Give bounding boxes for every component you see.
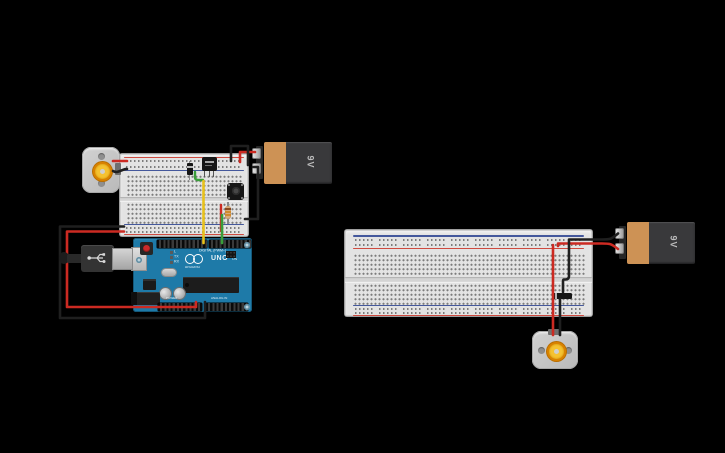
motor-terminals[interactable] — [115, 163, 121, 175]
battery-voltage-label: 9V — [306, 155, 316, 168]
positive-rail-line — [124, 234, 244, 236]
pushbutton-leg — [228, 184, 230, 186]
battery-9v-left[interactable]: 9V — [252, 142, 332, 184]
led-rx — [170, 261, 173, 264]
motor-terminals[interactable] — [548, 329, 560, 335]
chip-notch — [185, 283, 189, 287]
battery-negative-terminal[interactable] — [615, 243, 624, 254]
digital-pins-label: DIGITAL (PWM~) — [199, 249, 226, 253]
atmega-chip[interactable] — [183, 277, 239, 293]
rail-holes[interactable] — [126, 166, 242, 168]
diode-band — [555, 293, 557, 300]
resistor-band — [225, 214, 232, 216]
diode[interactable] — [187, 163, 194, 175]
power-pins-label: POWER — [166, 297, 177, 300]
pushbutton-leg — [228, 197, 230, 199]
diode-band — [187, 166, 194, 168]
mounting-hole — [244, 242, 250, 248]
transistor-leg — [213, 170, 214, 177]
circuit-canvas: 9V DIGITAL (PWM~) L TX RX UNO ARDUINO ON — [0, 0, 725, 453]
motor-shaft-gear — [93, 162, 112, 181]
negative-rail-line — [353, 305, 584, 307]
led-label-tx: TX — [174, 255, 179, 259]
usb-metal-shell — [112, 248, 133, 270]
motor-mount-hole — [98, 153, 105, 160]
terminal-holes[interactable] — [353, 253, 585, 275]
resistor-band — [225, 208, 232, 210]
crystal-oscillator — [162, 269, 176, 276]
rail-holes[interactable] — [126, 227, 242, 229]
motor-mount-hole — [565, 347, 572, 354]
pushbutton-leg — [241, 184, 243, 186]
pushbutton-leg — [241, 197, 243, 199]
analog-pins-label: ANALOG IN — [211, 297, 227, 300]
negative-rail-line — [353, 235, 584, 237]
rail-holes[interactable] — [126, 231, 242, 233]
led-label-l: L — [174, 250, 176, 254]
usb-cable[interactable] — [58, 244, 136, 274]
icsp-header[interactable] — [226, 251, 236, 258]
battery-9v-right[interactable]: 9V — [615, 222, 695, 264]
reset-button-cap[interactable] — [143, 245, 150, 252]
full-breadboard[interactable] — [345, 230, 592, 316]
usb-plug[interactable] — [81, 245, 114, 272]
rail-holes[interactable] — [355, 239, 583, 241]
positive-rail-line — [124, 157, 244, 159]
rail-holes[interactable] — [355, 312, 583, 314]
battery-positive-terminal[interactable] — [615, 228, 624, 239]
mounting-hole — [136, 257, 142, 263]
battery-label-band — [264, 142, 286, 184]
terminal-holes[interactable] — [353, 283, 585, 305]
resistor[interactable] — [225, 206, 232, 220]
rail-holes[interactable] — [355, 308, 583, 310]
negative-rail-line — [124, 170, 244, 172]
motor-mount-hole — [98, 180, 105, 187]
transistor-marking — [205, 165, 212, 167]
battery-voltage-label: 9V — [669, 235, 679, 248]
pushbutton[interactable] — [227, 183, 244, 200]
dc-motor-left[interactable] — [82, 147, 120, 193]
dc-motor-right[interactable] — [532, 331, 578, 369]
on-label: ON — [232, 258, 237, 261]
battery-positive-terminal[interactable] — [252, 148, 261, 159]
led-tx — [170, 256, 173, 259]
positive-rail-line — [353, 315, 584, 317]
digital-header-high[interactable] — [157, 240, 207, 248]
negative-rail-line — [124, 224, 244, 226]
analog-header[interactable] — [206, 303, 248, 311]
motor-shaft-gear — [547, 342, 566, 361]
battery-label-band — [627, 222, 649, 264]
resistor-band — [225, 211, 232, 213]
transistor-marking — [205, 161, 214, 163]
voltage-regulator — [143, 279, 156, 290]
reset-button[interactable] — [140, 242, 153, 255]
transistor-leg — [209, 170, 210, 177]
positive-rail-line — [353, 248, 584, 250]
diode-right[interactable] — [552, 293, 572, 300]
usb-trident-icon — [87, 252, 107, 264]
terminal-holes[interactable] — [126, 174, 242, 196]
led-l — [170, 251, 173, 254]
battery-negative-terminal[interactable] — [252, 163, 261, 174]
led-label-rx: RX — [174, 260, 179, 264]
arduino-logo — [185, 254, 205, 264]
transistor-leg — [204, 170, 205, 177]
rail-holes[interactable] — [126, 160, 242, 162]
motor-mount-hole — [538, 347, 545, 354]
power-header[interactable] — [158, 303, 202, 311]
power-jack — [131, 292, 160, 305]
arduino-uno[interactable]: DIGITAL (PWM~) L TX RX UNO ARDUINO ON PO… — [133, 238, 252, 312]
pushbutton-cap[interactable] — [232, 187, 240, 195]
transistor[interactable] — [202, 157, 217, 171]
mounting-hole — [244, 304, 250, 310]
brand-label: ARDUINO — [185, 266, 200, 269]
rail-holes[interactable] — [355, 244, 583, 246]
